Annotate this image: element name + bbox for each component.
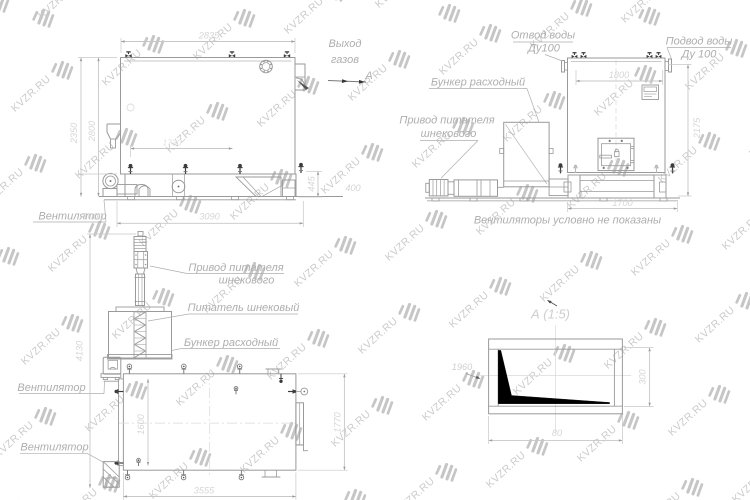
svg-text:шнекового: шнекового: [219, 275, 275, 287]
svg-text:Вентилятор: Вентилятор: [20, 442, 88, 454]
svg-text:Ду100: Ду100: [526, 43, 561, 55]
svg-text:шнекового: шнекового: [421, 128, 477, 140]
svg-text:Бункер расходный: Бункер расходный: [184, 337, 278, 349]
svg-text:1700: 1700: [612, 198, 633, 208]
svg-text:2350: 2350: [69, 122, 79, 144]
svg-text:Отвод воды: Отвод воды: [511, 30, 575, 42]
svg-text:Ду 100: Ду 100: [680, 49, 718, 61]
svg-text:400: 400: [345, 183, 361, 193]
svg-text:Выход: Выход: [328, 38, 361, 50]
svg-text:2835: 2835: [198, 31, 220, 41]
svg-text:Бункер расходный: Бункер расходный: [431, 77, 525, 89]
svg-text:1600: 1600: [136, 413, 146, 434]
svg-text:Вентилятор: Вентилятор: [17, 382, 85, 394]
svg-text:300: 300: [638, 368, 648, 384]
svg-text:1730: 1730: [163, 138, 182, 148]
svg-text:1960: 1960: [452, 362, 473, 372]
svg-text:А (1:5): А (1:5): [530, 307, 570, 322]
svg-text:445: 445: [307, 175, 317, 191]
svg-text:газов: газов: [331, 54, 359, 66]
svg-text:1000: 1000: [83, 212, 104, 222]
svg-text:2175: 2175: [692, 117, 702, 139]
svg-text:Вентиляторы условно не показан: Вентиляторы условно не показаны: [474, 215, 661, 227]
svg-text:80: 80: [552, 428, 563, 438]
svg-text:Привод питателя: Привод питателя: [399, 115, 494, 127]
svg-text:Привод питателя: Привод питателя: [188, 262, 283, 274]
svg-text:1770: 1770: [333, 411, 343, 432]
svg-text:Питатель шнековый: Питатель шнековый: [188, 302, 300, 314]
svg-text:4130: 4130: [75, 340, 85, 361]
svg-text:3090: 3090: [199, 212, 220, 222]
svg-text:2800: 2800: [87, 120, 97, 142]
svg-text:А: А: [364, 70, 372, 82]
svg-text:1800: 1800: [609, 70, 630, 80]
svg-text:3555: 3555: [194, 486, 215, 496]
svg-text:Подвод воды: Подвод воды: [666, 36, 733, 48]
